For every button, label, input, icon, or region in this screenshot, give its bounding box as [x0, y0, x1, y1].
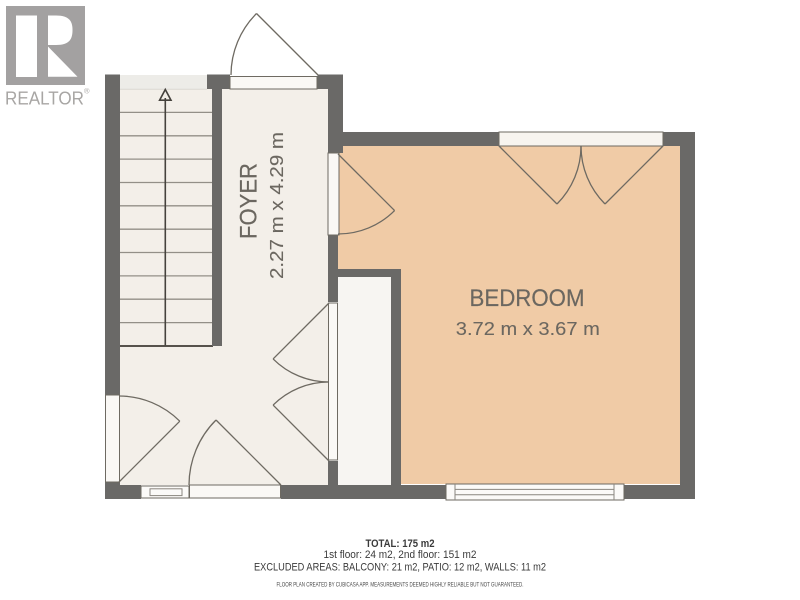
svg-text:3.72 m x 3.67 m: 3.72 m x 3.67 m	[456, 319, 600, 339]
svg-text:1st floor: 24 m2, 2nd floor: 1: 1st floor: 24 m2, 2nd floor: 151 m2	[324, 549, 477, 561]
svg-text:REALTOR: REALTOR	[5, 88, 84, 109]
svg-text:®: ®	[84, 87, 90, 96]
svg-text:BEDROOM: BEDROOM	[470, 285, 585, 312]
svg-text:EXCLUDED AREAS: BALCONY: 21 m2: EXCLUDED AREAS: BALCONY: 21 m2, PATIO: 1…	[254, 562, 546, 574]
svg-text:FOYER: FOYER	[236, 163, 263, 239]
svg-text:FLOOR PLAN CREATED BY CUBICASA: FLOOR PLAN CREATED BY CUBICASA APP. MEAS…	[277, 582, 524, 589]
svg-text:2.27 m x 4.29 m: 2.27 m x 4.29 m	[267, 132, 287, 279]
